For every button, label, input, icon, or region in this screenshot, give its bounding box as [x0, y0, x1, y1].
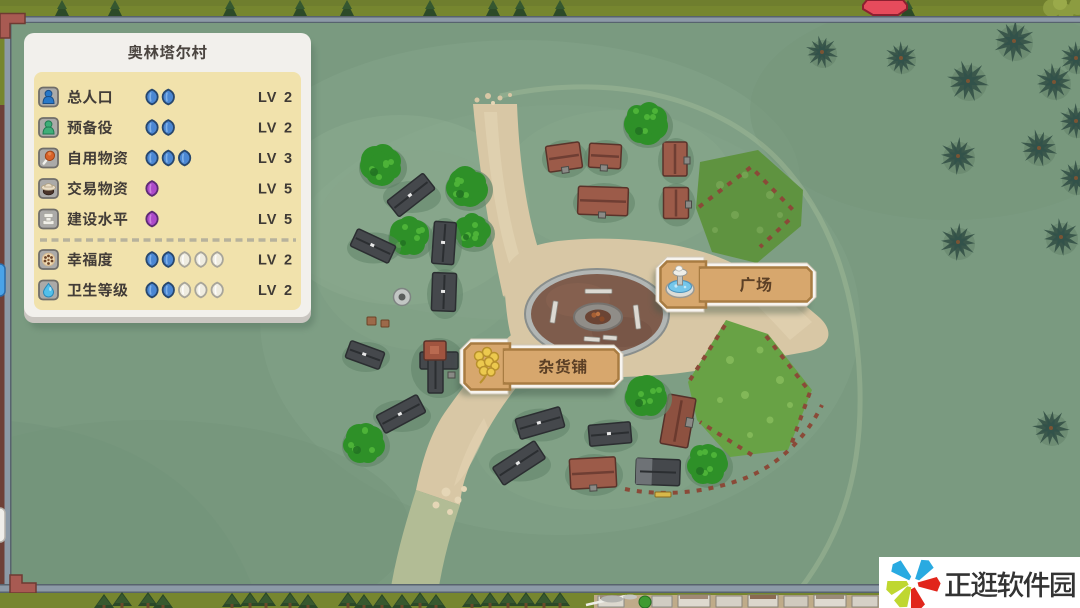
svg-text:LV: LV: [258, 212, 277, 228]
svg-text:2: 2: [284, 253, 292, 269]
svg-text:3: 3: [284, 151, 292, 167]
svg-text:5: 5: [284, 212, 292, 228]
svg-text:LV: LV: [258, 283, 277, 299]
svg-text:LV: LV: [258, 121, 277, 137]
svg-text:LV: LV: [258, 253, 277, 269]
svg-text:2: 2: [284, 90, 292, 106]
svg-text:5: 5: [284, 182, 292, 198]
svg-text:LV: LV: [258, 90, 277, 106]
svg-text:LV: LV: [258, 182, 277, 198]
svg-text:LV: LV: [258, 151, 277, 167]
svg-text:2: 2: [284, 121, 292, 137]
svg-text:2: 2: [284, 283, 292, 299]
